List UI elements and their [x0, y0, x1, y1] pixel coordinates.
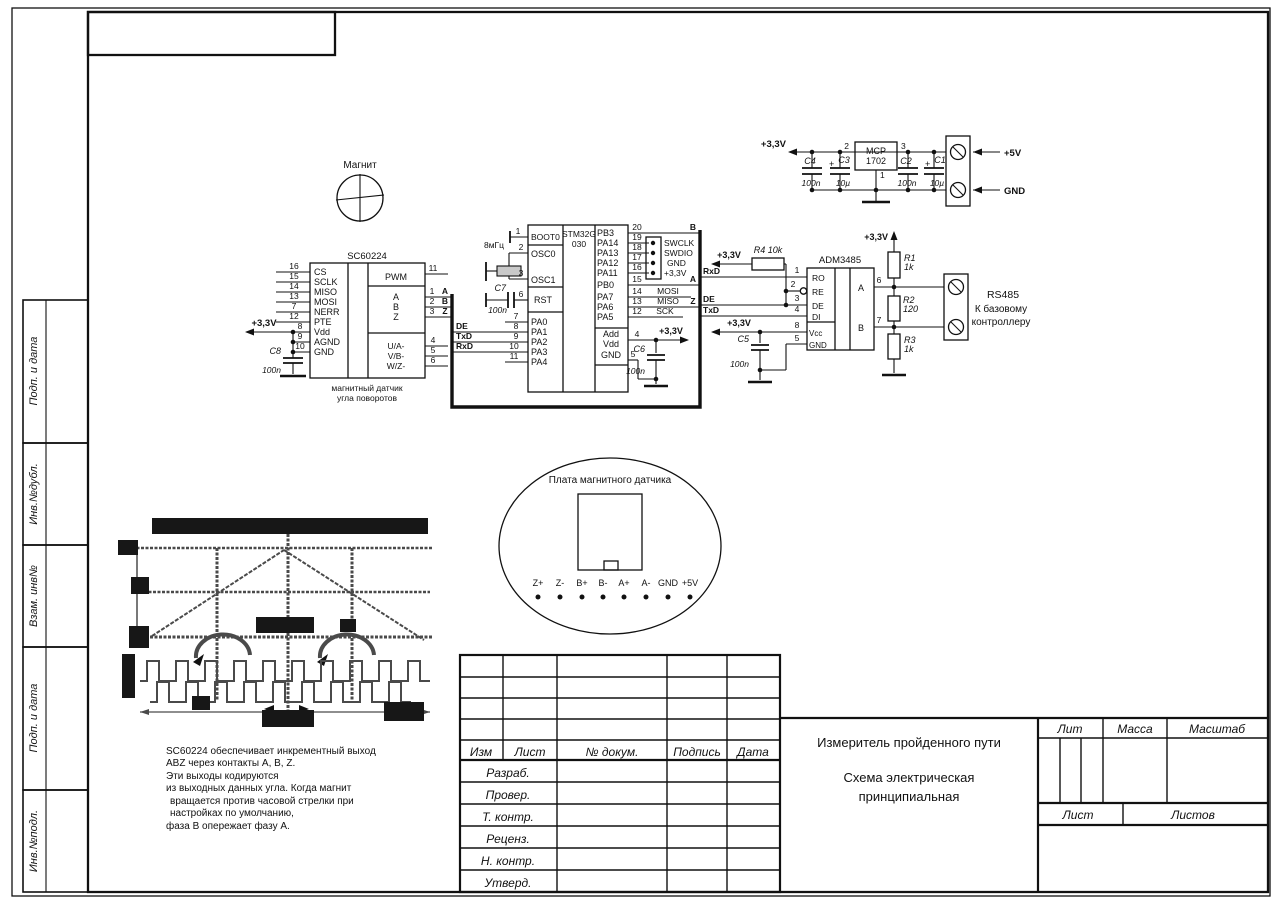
cap-value: 100n: [262, 365, 281, 375]
regulator-name: MCP: [866, 146, 886, 156]
cap-ref: C1: [934, 155, 946, 165]
pin-number: 1: [880, 170, 885, 180]
connector-pin-label: +5V: [682, 578, 698, 588]
pin-number: 8: [795, 320, 800, 330]
pin-number: 2: [844, 141, 849, 151]
cap-value: 100n: [898, 178, 917, 188]
pin-number: 6: [519, 289, 524, 299]
pin-name: Z: [393, 312, 399, 322]
pin-name: Add: [603, 329, 619, 339]
note-line: SC60224 обеспечивает инкрементный выход: [166, 745, 376, 757]
pin-number: 2: [430, 296, 435, 306]
note-line: фаза B опережает фазу A.: [166, 820, 290, 832]
tb-staff-row: Разраб.: [486, 766, 529, 780]
pin-number: 11: [429, 263, 438, 273]
net-label: TxD: [456, 331, 472, 341]
pin-number: 10: [509, 341, 519, 351]
cap-value: 100n: [488, 305, 507, 315]
note-line: Эти выходы кодируются: [166, 771, 279, 782]
pin-name: PWM: [385, 272, 407, 282]
pin-name: GND: [314, 347, 335, 357]
chip-caption: магнитный датчик: [331, 383, 402, 393]
pin-number: 1: [795, 265, 800, 275]
pin-number: 3: [795, 293, 800, 303]
pin-number: 2: [791, 279, 796, 289]
resistor-body: [888, 296, 900, 321]
pin-number: 15: [289, 271, 299, 281]
sensor-board-ellipse: Плата магнитного датчика Z+ Z- B+ B- A+ …: [499, 458, 721, 634]
net-label-5v: +5V: [1004, 148, 1022, 159]
net-label: MOSI: [657, 286, 679, 296]
schematic-sheet: Подп. и дата Инв.№дубл. Взам. инв№ Подп.…: [0, 0, 1280, 904]
pin-name: BOOT0: [531, 232, 560, 242]
pin-number: 13: [289, 291, 299, 301]
bus-label: RS485: [987, 289, 1019, 301]
note-line: вращается против часовой стрелки при: [170, 796, 354, 807]
pin-number: 15: [632, 274, 642, 284]
pin-number: 7: [877, 315, 882, 325]
pin-number: 3: [519, 268, 524, 278]
magnet-symbol: Магнит: [336, 160, 384, 222]
pin-number: 4: [795, 304, 800, 314]
pin-name: PA13: [597, 248, 618, 258]
pin-number: 17: [632, 252, 642, 262]
resistor-body: [888, 252, 900, 278]
pin-name: PB0: [597, 280, 614, 290]
net-label: RxD: [456, 341, 473, 351]
pin-number: 3: [901, 141, 906, 151]
pin-number: 7: [292, 301, 297, 311]
pin-name: PTE: [314, 317, 332, 327]
pin-name: V/B-: [388, 351, 405, 361]
power-supply-section: +3,3V MCP 1702 2 3 1 C4 100n C3 + 10µ C2…: [761, 136, 1025, 206]
net-label-33v: +3,3V: [727, 318, 751, 328]
polarity-plus: +: [925, 159, 930, 169]
pin-name: PB3: [597, 228, 614, 238]
pin-name: A: [858, 283, 864, 293]
net-label: DE: [456, 321, 468, 331]
cap-ref: C2: [900, 156, 912, 166]
connector-pin-label: GND: [667, 258, 686, 268]
net-label: B: [442, 296, 448, 306]
sc60224-section: SC60224 16 15 14 13 7 12 8 9 10 CS SCLK …: [245, 251, 452, 403]
tb-list-header: Лист: [1062, 808, 1094, 822]
cap-value: 100n: [626, 366, 645, 376]
pin-name: RO: [812, 273, 825, 283]
connector-pin-label: A+: [618, 578, 629, 588]
pin-number: 5: [795, 333, 800, 343]
connector-pin-label: SWDIO: [664, 248, 693, 258]
chip-title: STM32G: [562, 229, 596, 239]
pin-number: 7: [514, 311, 519, 321]
cap-ref: C8: [269, 346, 281, 356]
tb-staff-row: Провер.: [486, 788, 531, 802]
net-label: MISO: [657, 296, 679, 306]
pin-number: 18: [632, 242, 642, 252]
tb-staff-row: Н. контр.: [481, 854, 535, 868]
cap-ref: C7: [494, 283, 506, 293]
pin-number: 16: [289, 261, 299, 271]
mcu-board-section: A B Z 8мГц C7 100n DE TxD RxD: [442, 222, 720, 407]
margin-label: Подп. и дата: [28, 684, 40, 753]
pin-name: PA3: [531, 347, 547, 357]
tb-massa-header: Масса: [1117, 722, 1153, 736]
net-arrow: [973, 149, 982, 156]
mcu-decoupling-cap: [638, 337, 689, 387]
resistor-value: 1k: [904, 262, 914, 272]
net-label: TxD: [703, 305, 719, 315]
rs485-terminal-block: [944, 274, 968, 340]
board-title: Плата магнитного датчика: [549, 475, 672, 486]
pin-name: Vdd: [314, 327, 330, 337]
tb-lit-header: Лит: [1057, 722, 1083, 736]
board-outline: [452, 230, 700, 407]
chip-caption: угла поворотов: [337, 393, 397, 403]
cap-ref: C4: [804, 156, 816, 166]
sensor-chip-notch: [604, 561, 618, 570]
net-arrow: [973, 187, 982, 194]
pin-name: PA7: [597, 292, 613, 302]
pin-number: 19: [632, 232, 642, 242]
note-text: SC60224 обеспечивает инкрементный выход …: [166, 745, 376, 832]
magnet-label: Магнит: [343, 160, 377, 171]
connector-pin-label: SWCLK: [664, 238, 695, 248]
connector-pin-label: B-: [599, 578, 608, 588]
pin-number: 9: [514, 331, 519, 341]
net-label: A: [690, 274, 696, 284]
pin-number: 14: [632, 286, 642, 296]
connector-pin-label: A-: [642, 578, 651, 588]
pin-number: 2: [519, 242, 524, 252]
crystal-value: 8мГц: [484, 240, 504, 250]
bus-destination: К базовому: [975, 303, 1027, 315]
pin-name: PA11: [597, 268, 618, 278]
net-label-33v: +3,3V: [659, 326, 683, 336]
pin-name: PA6: [597, 302, 613, 312]
tb-listov-header: Листов: [1170, 808, 1215, 822]
tb-col-header: Дата: [735, 745, 769, 759]
pin-name: Vcc: [809, 329, 822, 338]
left-margin-column: Подп. и дата Инв.№дубл. Взам. инв№ Подп.…: [23, 300, 88, 892]
net-label: RxD: [703, 266, 720, 276]
pin-number: 12: [289, 311, 299, 321]
schematic-drawing: Подп. и дата Инв.№дубл. Взам. инв№ Подп.…: [0, 0, 1280, 904]
pin-name: PA4: [531, 357, 547, 367]
pin-name: CS: [314, 267, 327, 277]
tb-col-header: Лист: [514, 745, 546, 759]
pin-number: 13: [632, 296, 642, 306]
pin-name: OSC0: [531, 249, 556, 259]
polarity-plus: +: [829, 159, 834, 169]
pin-name: A: [393, 292, 399, 302]
chip-title: 030: [572, 239, 586, 249]
note-line: ABZ через контакты A, B, Z.: [166, 758, 295, 769]
regulator-name: 1702: [866, 156, 886, 166]
cap-ref: C5: [737, 334, 749, 344]
pin-name: GND: [601, 350, 622, 360]
sensor-chip-outline: [578, 494, 642, 570]
net-label: Z: [442, 306, 447, 316]
net-label: A: [442, 286, 448, 296]
cap-value: 10µ: [930, 178, 944, 188]
pin-number: 3: [430, 306, 435, 316]
pin-name: OSC1: [531, 275, 556, 285]
net-label-33v: +3,3V: [251, 318, 277, 329]
pin-number: 5: [431, 345, 436, 355]
pin-number: 6: [877, 275, 882, 285]
margin-label: Инв.№дубл.: [28, 463, 40, 525]
connector-pin-label: B+: [576, 578, 587, 588]
bus-destination: контроллеру: [972, 317, 1031, 328]
power-terminal-block: [946, 136, 970, 206]
adm3485-section: +3,3V R4 10k ADM3485 1 2 3 4 RO RE DE DI…: [700, 231, 1030, 382]
mechanism-drawing: [118, 518, 432, 727]
chip-title: SC60224: [347, 251, 387, 262]
tb-staff-row: Утверд.: [484, 876, 532, 890]
resistor-body: [752, 258, 784, 270]
net-label: B: [690, 222, 696, 232]
pin-name: MOSI: [314, 297, 337, 307]
crystal-symbol: [497, 266, 521, 276]
pin-number: 4: [431, 335, 436, 345]
pin-name: PA2: [531, 337, 547, 347]
net-arrow: [788, 149, 797, 156]
document-type: Схема электрическая: [844, 770, 975, 785]
net-label: Z: [690, 296, 695, 306]
pin-name: SCLK: [314, 277, 338, 287]
tb-col-header: Подпись: [673, 745, 721, 759]
pin-number: 9: [298, 331, 303, 341]
pin-name: W/Z-: [387, 361, 406, 371]
margin-label: Инв.№подл.: [28, 810, 40, 872]
pin-name: RST: [534, 295, 553, 305]
net-arrow: [245, 329, 254, 336]
cap-ref: C6: [633, 344, 645, 354]
tb-masshtab-header: Масштаб: [1189, 722, 1246, 736]
connector-pin-label: GND: [658, 578, 679, 588]
connector-pin-label: Z+: [533, 578, 544, 588]
pin-name: DE: [812, 301, 824, 311]
capacitor-plates: [802, 168, 944, 174]
pin-number: 4: [635, 329, 640, 339]
cap-value: 100n: [802, 178, 821, 188]
inversion-bubble: [800, 288, 806, 294]
net-label: SCK: [656, 306, 674, 316]
note-line: из выходных данных угла. Когда магнит: [166, 783, 352, 794]
margin-label: Взам. инв№: [28, 565, 40, 627]
document-title: Измеритель пройденного пути: [817, 735, 1001, 750]
pin-name: PA12: [597, 258, 618, 268]
net-arrow: [891, 231, 898, 240]
power-wires: [790, 152, 1000, 201]
pin-name: MISO: [314, 287, 337, 297]
pin-number: 16: [632, 262, 642, 272]
net-label-33v: +3,3V: [717, 250, 741, 260]
pin-name: PA1: [531, 327, 547, 337]
net-label: DE: [703, 294, 715, 304]
pin-number: 1: [516, 226, 521, 236]
net-label-33v: +3,3V: [864, 232, 888, 242]
cap-ref: C3: [838, 155, 850, 165]
chip-title: ADM3485: [819, 255, 861, 266]
margin-label: Подп. и дата: [28, 337, 40, 406]
pin-number: 14: [289, 281, 299, 291]
pin-number: 8: [298, 321, 303, 331]
title-block: Изм Лист № докум. Подпись Дата Разраб. П…: [460, 655, 1268, 892]
pin-name: Vdd: [603, 339, 619, 349]
pin-name: DI: [812, 312, 821, 322]
pin-name: PA5: [597, 312, 613, 322]
pin-name: PA14: [597, 238, 618, 248]
pin-name: B: [393, 302, 399, 312]
note-line: настройках по умолчанию,: [170, 808, 294, 819]
pin-name: NERR: [314, 307, 340, 317]
resistor-value: 120: [903, 304, 918, 314]
pin-name: GND: [809, 341, 827, 350]
connector-pin-label: +3,3V: [664, 268, 687, 278]
pin-name: AGND: [314, 337, 341, 347]
tb-staff-row: Реценз.: [486, 832, 530, 846]
connector-pin-label: Z-: [556, 578, 565, 588]
net-label-33v: +3,3V: [761, 139, 787, 150]
tb-staff-row: Т. контр.: [482, 810, 534, 824]
tb-col-header: Изм: [470, 745, 492, 759]
pin-number: 20: [632, 222, 642, 232]
net-label-gnd: GND: [1004, 186, 1025, 197]
pin-number: 11: [510, 351, 519, 361]
pin-number: 12: [632, 306, 642, 316]
top-left-stamp-box: [88, 12, 335, 55]
pin-name: RE: [812, 287, 824, 297]
pin-number: 1: [430, 286, 435, 296]
cap-value: 10µ: [836, 178, 850, 188]
cap-value: 100n: [730, 359, 749, 369]
tb-col-header: № докум.: [586, 745, 639, 759]
resistor-ref: R4 10k: [754, 245, 783, 255]
net-arrow: [711, 329, 720, 336]
resistor-value: 1k: [904, 344, 914, 354]
resistor-body: [888, 334, 900, 359]
pin-number: 6: [431, 355, 436, 365]
pin-name: B: [858, 323, 864, 333]
pin-number: 10: [295, 341, 305, 351]
pin-number: 8: [514, 321, 519, 331]
pin-name: U/A-: [388, 341, 405, 351]
pin-name: PA0: [531, 317, 547, 327]
document-type: принципиальная: [859, 789, 960, 804]
